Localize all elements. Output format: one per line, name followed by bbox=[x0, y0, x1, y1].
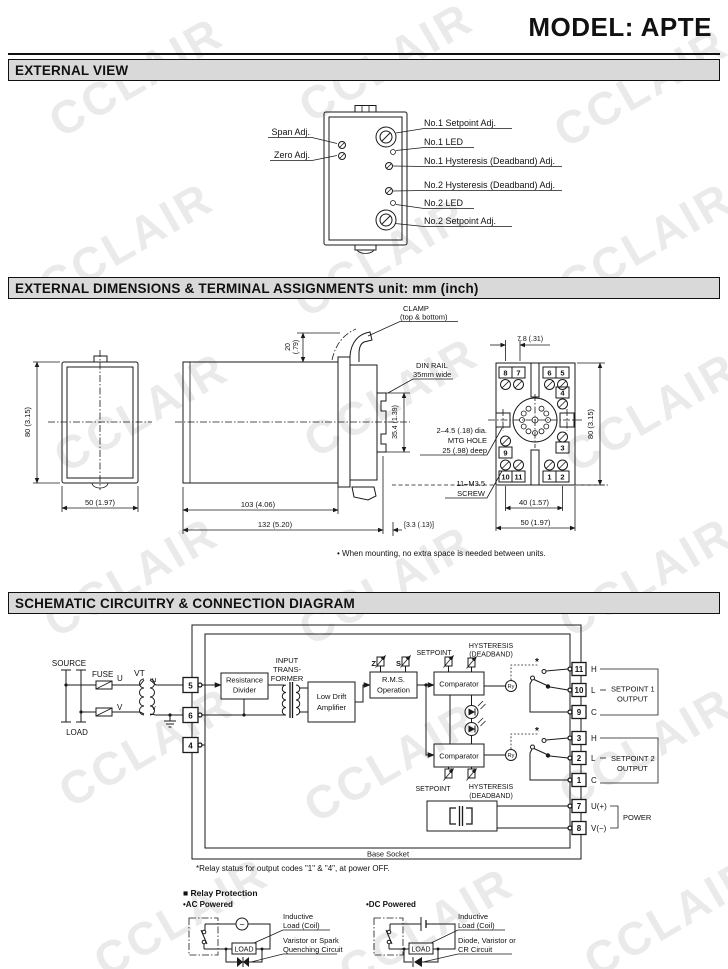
label-v: v bbox=[152, 703, 156, 712]
relay2-star: * bbox=[535, 726, 539, 737]
led1-indicator bbox=[391, 150, 396, 155]
callout-lines bbox=[268, 129, 562, 227]
label-screw2: SCREW bbox=[457, 489, 486, 498]
dc-powered-title: •DC Powered bbox=[366, 900, 416, 909]
hysteresis1-screw[interactable] bbox=[386, 163, 393, 170]
label-trans: TRANS- bbox=[273, 665, 301, 674]
label-setpoint1-output: SETPOINT 1 bbox=[611, 685, 655, 694]
terminal-10: 10 bbox=[575, 686, 584, 695]
label-amplifier: Amplifier bbox=[317, 703, 347, 712]
output-groups: SETPOINT 1 OUTPUT SETPOINT 2 OUTPUT POWE… bbox=[600, 669, 658, 828]
label-load: LOAD bbox=[66, 728, 88, 737]
relay2-contacts bbox=[530, 738, 568, 780]
label-no2-hysteresis: No.2 Hysteresis (Deadband) Adj. bbox=[424, 180, 555, 190]
hysteresis2-screw[interactable] bbox=[386, 188, 393, 195]
socket-terminal-11: 11 bbox=[515, 473, 523, 482]
span-trimmer[interactable]: S bbox=[396, 656, 411, 673]
hysteresis1-trimmer[interactable] bbox=[467, 657, 477, 673]
label-comparator2: Comparator bbox=[439, 752, 479, 761]
fuse-symbol bbox=[96, 681, 112, 716]
dim-103: 103 (4.06) bbox=[241, 500, 276, 509]
setpoint2-knob[interactable] bbox=[376, 210, 396, 230]
ac-protection-circuit: ~ LOAD Inductive Load (Coil) Varistor or… bbox=[189, 912, 344, 967]
ac-powered-title: •AC Powered bbox=[183, 900, 233, 909]
terminal-2: 2 bbox=[577, 754, 582, 763]
label-z: Z bbox=[371, 659, 376, 668]
label-s: S bbox=[396, 659, 401, 668]
hysteresis2-trimmer[interactable] bbox=[467, 767, 477, 781]
label-former: FORMER bbox=[271, 674, 304, 683]
ac-load-box: LOAD bbox=[234, 947, 253, 954]
label-ry1: Ry bbox=[508, 684, 515, 690]
input-terminals: 5 6 4 bbox=[183, 678, 205, 753]
power-transformer-symbol bbox=[450, 806, 472, 826]
terminal-10-label: L bbox=[591, 686, 596, 695]
relay1-star: * bbox=[535, 657, 539, 668]
label-no1-led: No.1 LED bbox=[424, 137, 464, 147]
section-bar-schematic: SCHEMATIC CIRCUITRY & CONNECTION DIAGRAM bbox=[8, 592, 720, 614]
socket-view: 8 7 6 5 4 9 3 10 11 1 bbox=[420, 336, 605, 531]
label-fuse: FUSE bbox=[92, 670, 113, 679]
varistor-label1: Varistor or Spark bbox=[283, 936, 339, 945]
setpoint1-knob[interactable] bbox=[376, 127, 396, 147]
section-title: EXTERNAL VIEW bbox=[9, 63, 128, 78]
dc-load-box: LOAD bbox=[411, 947, 430, 954]
terminal-2-label: L bbox=[591, 754, 596, 763]
dim-132: 132 (5.20) bbox=[258, 520, 293, 529]
label-base-socket: Base Socket bbox=[367, 850, 410, 859]
varistor-label2: Quenching Circuit bbox=[283, 945, 344, 954]
socket-terminal-10: 10 bbox=[501, 473, 509, 482]
label-hysteresis2: HYSTERESIS bbox=[469, 784, 514, 791]
section-bar-external-view: EXTERNAL VIEW bbox=[8, 59, 720, 81]
dim-rail-height: 35.4 (1.39) bbox=[392, 405, 399, 439]
label-hysteresis1: HYSTERESIS bbox=[469, 643, 514, 650]
dc-inductive-label: Inductive bbox=[458, 912, 488, 921]
section-title: EXTERNAL DIMENSIONS & TERMINAL ASSIGNMEN… bbox=[9, 281, 479, 296]
setpoint2-trimmer[interactable] bbox=[444, 767, 454, 781]
dim-front-width: 50 (1.97) bbox=[85, 498, 116, 507]
label-ry2: Ry bbox=[508, 753, 515, 759]
relay1-contacts bbox=[530, 669, 568, 712]
terminal-8: 8 bbox=[577, 824, 582, 833]
diode-label2: CR Circuit bbox=[458, 945, 493, 954]
terminal-11: 11 bbox=[575, 665, 584, 674]
label-U: U bbox=[117, 674, 123, 683]
diode-label1: Diode, Varistor or bbox=[458, 936, 516, 945]
label-din-rail2: 35mm wide bbox=[413, 370, 451, 379]
terminal-5: 5 bbox=[188, 682, 193, 691]
dimensions-figure: 80 (3.15) 50 (1.97) 20 (.79) bbox=[0, 300, 728, 585]
terminal-4: 4 bbox=[188, 742, 193, 751]
socket-terminal-9: 9 bbox=[503, 449, 507, 458]
datasheet-page: CCLAIR CCLAIR CCLAIR CCLAIR CCLAIR CCLAI… bbox=[0, 0, 728, 969]
label-V: V bbox=[117, 703, 123, 712]
dc-load-coil-label: Load (Coil) bbox=[458, 921, 495, 930]
socket-terminal-6: 6 bbox=[547, 369, 551, 378]
label-low-drift: Low Drift bbox=[317, 692, 348, 701]
module-outline bbox=[205, 634, 570, 848]
relay-status-note: *Relay status for output codes "1" & "4"… bbox=[196, 864, 390, 873]
section-title: SCHEMATIC CIRCUITRY & CONNECTION DIAGRAM bbox=[9, 596, 355, 611]
device-front-panel bbox=[324, 106, 407, 254]
label-no1-setpoint: No.1 Setpoint Adj. bbox=[424, 118, 496, 128]
label-clamp2: (top & bottom) bbox=[400, 313, 448, 322]
label-mtg3: 25 (.98) deep bbox=[442, 446, 487, 455]
dim-front-height: 80 (3.15) bbox=[23, 406, 32, 437]
label-source: SOURCE bbox=[52, 659, 86, 668]
dc-protection-circuit: LOAD Inductive Load (Coil) Diode, Varist… bbox=[374, 912, 516, 967]
label-no2-led: No.2 LED bbox=[424, 198, 464, 208]
terminal-8-label: V(−) bbox=[591, 824, 607, 833]
terminal-3: 3 bbox=[577, 734, 582, 743]
label-mtg1: 2–4.5 (.18) dia. bbox=[437, 426, 487, 435]
setpoint1-trimmer[interactable] bbox=[444, 656, 454, 673]
socket-terminal-2: 2 bbox=[560, 473, 564, 482]
terminal-1: 1 bbox=[577, 776, 582, 785]
led2-symbol bbox=[465, 718, 486, 736]
zero-adj-screw[interactable] bbox=[339, 153, 346, 160]
dim-clamp-20: 20 bbox=[285, 343, 292, 351]
label-setpoint1: SETPOINT bbox=[416, 650, 452, 657]
label-output1: OUTPUT bbox=[617, 695, 648, 704]
socket-terminal-7: 7 bbox=[516, 369, 520, 378]
dim-33: [3.3 (.13)] bbox=[404, 522, 434, 529]
terminal-3-label: H bbox=[591, 734, 597, 743]
label-divider: Divider bbox=[233, 686, 257, 695]
label-setpoint2-output: SETPOINT 2 bbox=[611, 754, 655, 763]
relay-protection-title: ■ Relay Protection bbox=[183, 888, 258, 898]
terminal-7: 7 bbox=[577, 802, 582, 811]
terminal-9-label: C bbox=[591, 708, 597, 717]
terminal-11-label: H bbox=[591, 665, 597, 674]
label-power: POWER bbox=[623, 813, 652, 822]
ground-symbol bbox=[164, 715, 176, 727]
section-bar-dimensions: EXTERNAL DIMENSIONS & TERMINAL ASSIGNMEN… bbox=[8, 277, 720, 299]
ac-load-coil-label: Load (Coil) bbox=[283, 921, 320, 930]
span-adj-screw[interactable] bbox=[339, 142, 346, 149]
label-no1-hysteresis: No.1 Hysteresis (Deadband) Adj. bbox=[424, 156, 555, 166]
terminal-9: 9 bbox=[577, 708, 582, 717]
label-no2-setpoint: No.2 Setpoint Adj. bbox=[424, 216, 496, 226]
schematic-figure: SOURCE LOAD FUSE U V VT u v bbox=[0, 618, 728, 969]
label-span-adj: Span Adj. bbox=[271, 127, 310, 137]
terminal-6: 6 bbox=[188, 712, 193, 721]
dim-40: 40 (1.57) bbox=[519, 498, 550, 507]
label-deadband2: (DEADBAND) bbox=[469, 793, 513, 800]
socket-terminal-4: 4 bbox=[560, 389, 565, 398]
label-din-rail: DIN RAIL bbox=[416, 361, 448, 370]
label-mtg2: MTG HOLE bbox=[448, 436, 487, 445]
label-comparator1: Comparator bbox=[439, 680, 479, 689]
dim-clamp-79: (.79) bbox=[293, 340, 300, 354]
input-transformer-symbol bbox=[282, 682, 300, 718]
socket-terminal-3: 3 bbox=[560, 444, 564, 453]
dim-pitch: 7.8 (.31) bbox=[517, 336, 543, 343]
socket-terminal-5: 5 bbox=[560, 369, 564, 378]
dim-50: 50 (1.97) bbox=[520, 518, 551, 527]
terminal-1-label: C bbox=[591, 776, 597, 785]
page-title: MODEL: APTE bbox=[528, 12, 712, 43]
label-vt: VT bbox=[134, 668, 145, 678]
mounting-note: • When mounting, no extra space is neede… bbox=[337, 549, 546, 558]
label-output2: OUTPUT bbox=[617, 764, 648, 773]
socket-terminal-1: 1 bbox=[547, 473, 551, 482]
zero-trimmer[interactable]: Z bbox=[371, 656, 385, 673]
base-socket-outline bbox=[192, 625, 581, 859]
label-zero-adj: Zero Adj. bbox=[274, 150, 310, 160]
output-terminals: 11 10 9 3 2 1 7 8 bbox=[568, 663, 586, 835]
header-rule bbox=[8, 53, 720, 55]
label-rms: R.M.S. bbox=[382, 675, 405, 684]
label-input: INPUT bbox=[276, 656, 299, 665]
low-drift-amplifier-block bbox=[308, 682, 355, 722]
led2-indicator bbox=[391, 201, 396, 206]
terminal-7-label: U(+) bbox=[591, 802, 607, 811]
label-setpoint2: SETPOINT bbox=[415, 786, 451, 793]
label-screw1: 11–M3.5 bbox=[456, 479, 485, 488]
label-operation: Operation bbox=[377, 686, 410, 695]
label-resistance: Resistance bbox=[226, 676, 263, 685]
led1-symbol bbox=[465, 701, 486, 719]
dim-socket-height: 80 (3.15) bbox=[586, 408, 595, 439]
ac-inductive-label: Inductive bbox=[283, 912, 313, 921]
front-view: 80 (3.15) 50 (1.97) bbox=[23, 350, 152, 512]
socket-terminal-8: 8 bbox=[503, 369, 507, 378]
external-view-figure: Span Adj. Zero Adj. No.1 Setpoint Adj. N… bbox=[0, 88, 728, 266]
ac-source-symbol: ~ bbox=[239, 920, 244, 930]
input-source-circuit: SOURCE LOAD FUSE U V VT u v bbox=[52, 659, 183, 737]
